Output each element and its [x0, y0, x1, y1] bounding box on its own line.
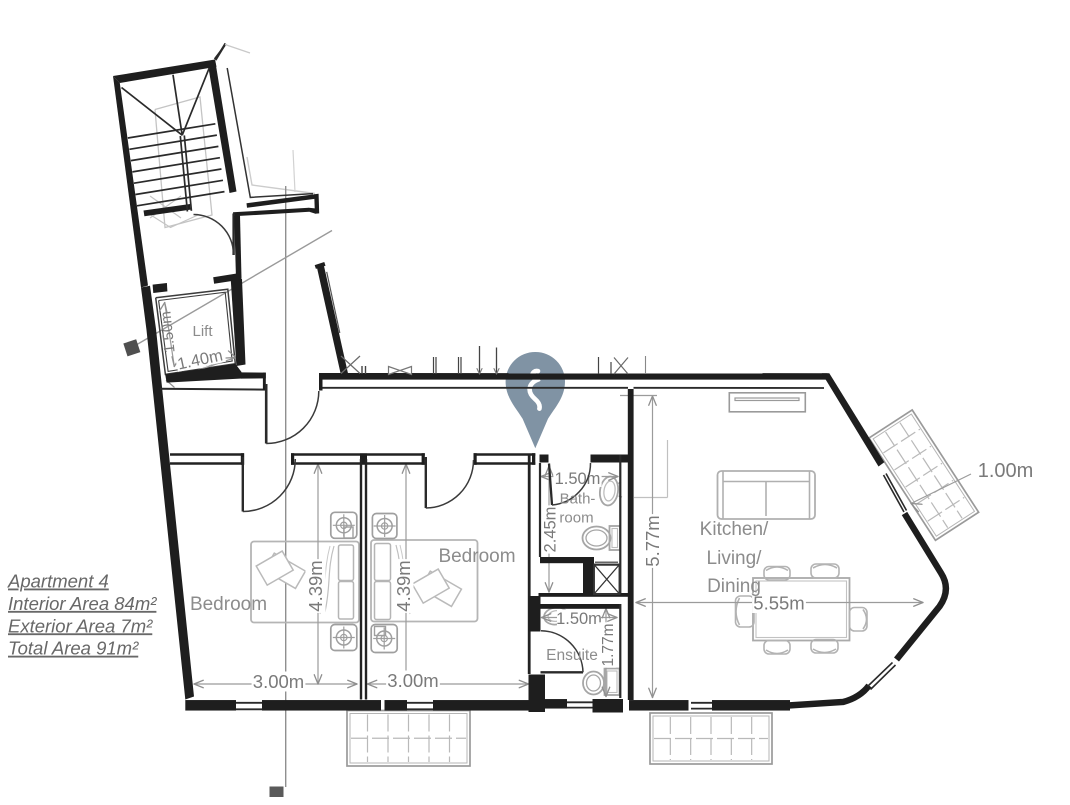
- svg-text:4.39m: 4.39m: [305, 560, 326, 611]
- svg-text:Dining: Dining: [707, 576, 761, 597]
- svg-text:2.45m: 2.45m: [541, 507, 559, 553]
- svg-text:1.50m: 1.50m: [555, 470, 601, 488]
- svg-text:Kitchen/: Kitchen/: [700, 519, 769, 540]
- svg-text:1.77m: 1.77m: [600, 623, 617, 666]
- svg-text:1.00m: 1.00m: [978, 460, 1034, 482]
- svg-text:Living/: Living/: [707, 548, 763, 569]
- svg-text:Bath-: Bath-: [560, 491, 596, 508]
- svg-text:Lift: Lift: [192, 323, 213, 340]
- svg-text:Bedroom: Bedroom: [190, 594, 267, 615]
- svg-text:Ensuite: Ensuite: [546, 647, 598, 664]
- svg-text:Exterior Area 7m²: Exterior Area 7m²: [8, 615, 153, 636]
- svg-text:5.55m: 5.55m: [753, 593, 804, 614]
- svg-text:Total Area 91m²: Total Area 91m²: [8, 638, 139, 659]
- svg-text:1.50m: 1.50m: [556, 610, 602, 628]
- svg-text:4.39m: 4.39m: [393, 560, 414, 611]
- svg-text:3.00m: 3.00m: [253, 671, 304, 692]
- svg-text:3.00m: 3.00m: [387, 670, 438, 691]
- svg-text:5.77m: 5.77m: [642, 515, 663, 566]
- svg-text:room: room: [559, 510, 593, 527]
- svg-text:Bedroom: Bedroom: [438, 546, 515, 567]
- svg-text:Interior Area 84m²: Interior Area 84m²: [8, 593, 157, 614]
- svg-text:Apartment 4: Apartment 4: [7, 571, 109, 592]
